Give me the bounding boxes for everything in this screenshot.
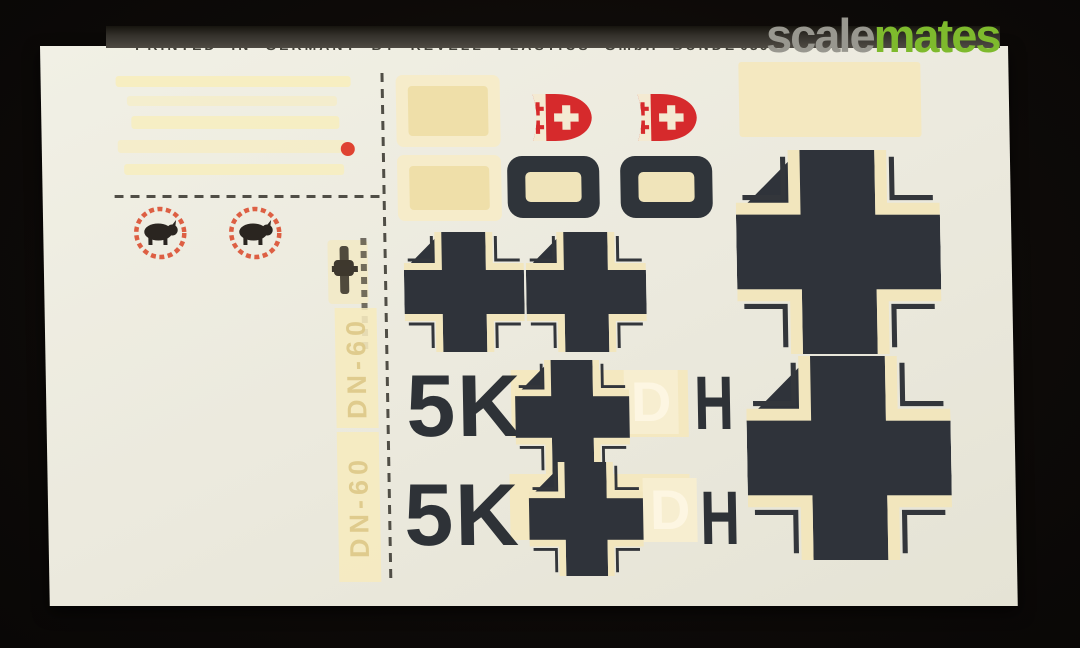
yellow-stripe-decal (131, 116, 339, 129)
balkenkreuz-icon (513, 360, 631, 474)
vertical-code-text: DN-60 (343, 455, 376, 558)
cream-plate-decal (396, 75, 501, 147)
yellow-stripe-decal (118, 140, 346, 153)
aircraft-code-h: H (694, 366, 735, 442)
balkenkreuz-icon (527, 462, 645, 576)
red-dot-decal (341, 142, 355, 156)
horizontal-dashed-cut-line (115, 195, 385, 198)
vertical-code-text: DN-60 (340, 316, 373, 419)
balkenkreuz-icon (525, 232, 647, 352)
crest-shield-icon (633, 92, 700, 143)
boar-emblem-icon (132, 205, 189, 261)
aircraft-code-d: D (649, 482, 690, 538)
cream-plate-decal (397, 155, 502, 221)
aircraft-code-5k: 5K (406, 362, 524, 450)
crest-shield-icon (528, 92, 595, 143)
large-cream-rectangle-decal (738, 62, 921, 137)
decal-sheet-paper: PRINTED IN GERMANY BY REVELL PLASTICS Gm… (40, 46, 1018, 606)
aircraft-code-h: H (700, 481, 741, 557)
vertical-code-strip: DN-60 (337, 432, 382, 582)
yellow-stripe-decal (127, 96, 337, 106)
letter-d-ring-marking (507, 156, 600, 218)
photo-of-revell-decal-sheet: PRINTED IN GERMANY BY REVELL PLASTICS Gm… (0, 0, 1080, 648)
scalemates-logo[interactable]: scalemates (766, 12, 999, 59)
aircraft-code-d-patch: D (643, 478, 698, 542)
large-balkenkreuz-icon (735, 150, 943, 354)
logo-text-scale: scale (766, 9, 874, 62)
aircraft-code-5k: 5K (403, 471, 521, 559)
logo-text-mates: mates (874, 9, 1000, 62)
aircraft-code-d: D (630, 374, 671, 430)
boar-emblem-icon (227, 205, 284, 261)
letter-d-ring-marking (620, 156, 713, 218)
vertical-code-strip: DN-60 (335, 308, 379, 428)
large-balkenkreuz-icon (745, 356, 953, 560)
vertical-dashed-cut-line (380, 73, 392, 581)
yellow-stripe-decal (116, 76, 351, 87)
yellow-stripe-decal (124, 164, 344, 175)
balkenkreuz-icon (403, 232, 525, 352)
aircraft-code-d-patch: D (624, 370, 679, 434)
